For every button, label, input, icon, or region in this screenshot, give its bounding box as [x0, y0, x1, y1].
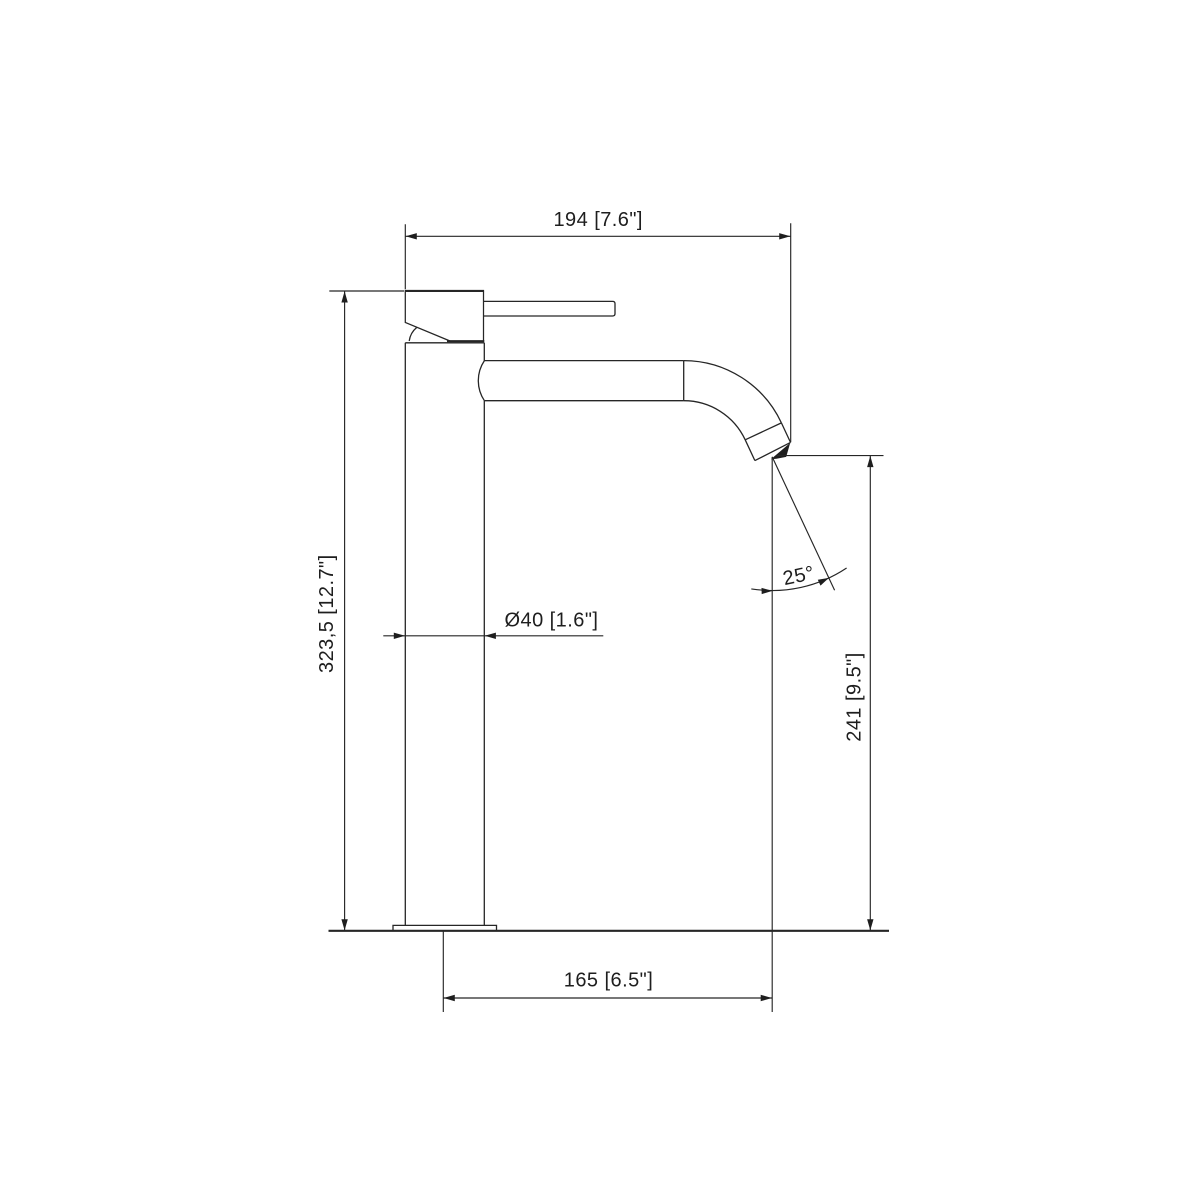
svg-text:323,5 [12.7"]: 323,5 [12.7"] — [316, 554, 338, 673]
svg-text:241 [9.5"]: 241 [9.5"] — [843, 652, 865, 741]
svg-text:165 [6.5"]: 165 [6.5"] — [564, 969, 653, 991]
svg-text:Ø40 [1.6"]: Ø40 [1.6"] — [505, 610, 599, 632]
svg-text:25°: 25° — [781, 562, 816, 590]
svg-text:194 [7.6"]: 194 [7.6"] — [553, 209, 642, 231]
